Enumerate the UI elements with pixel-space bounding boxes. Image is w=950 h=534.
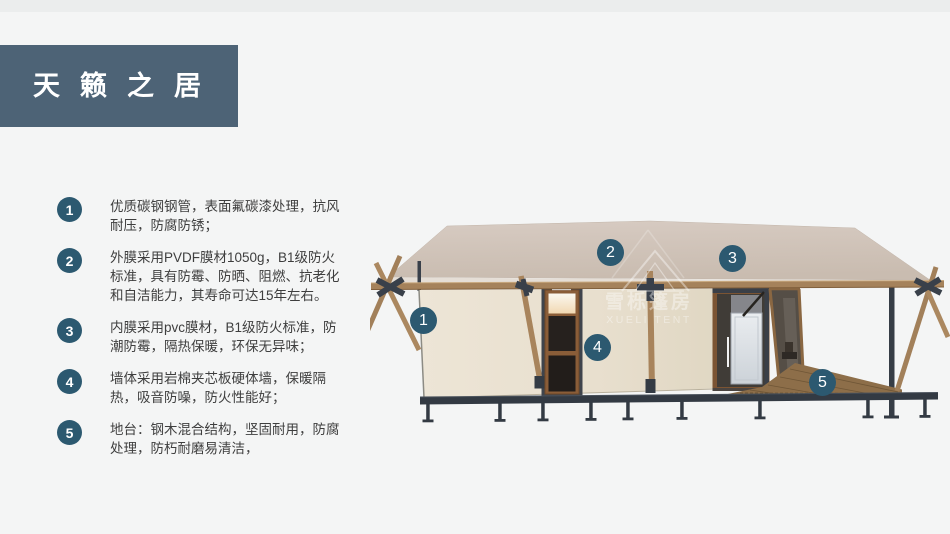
callout-1: 1 (410, 307, 437, 334)
base-frame (420, 393, 938, 423)
feature-item-5: 5 地台：钢木混合结构，坚固耐用，防腐处理，防朽耐磨易清洁， (57, 420, 367, 458)
feature-number-badge: 5 (57, 420, 82, 445)
right-post-foot (884, 416, 899, 419)
door-top-window (549, 294, 576, 314)
feature-item-4: 4 墙体采用岩棉夹芯板硬体墙，保暖隔热，吸音防噪，防火性能好； (57, 369, 367, 407)
entry-door (542, 287, 583, 398)
callout-2: 2 (597, 239, 624, 266)
feature-number-badge: 2 (57, 248, 82, 273)
feature-number-badge: 4 (57, 369, 82, 394)
furniture-silhouette (782, 352, 797, 359)
feature-text: 地台：钢木混合结构，坚固耐用，防腐处理，防朽耐磨易清洁， (110, 420, 348, 458)
door-handle (727, 337, 729, 367)
roof-canopy (388, 221, 930, 280)
feature-item-2: 2 外膜采用PVDF膜材1050g，B1级防火标准，具有防霉、防晒、阻燃、抗老化… (57, 248, 367, 305)
glass-door-section (713, 288, 770, 391)
watermark-cn: 雪栎篷房 (605, 290, 693, 313)
callout-3: 3 (719, 245, 746, 272)
feature-text: 外膜采用PVDF膜材1050g，B1级防火标准，具有防霉、防晒、阻燃、抗老化和自… (110, 248, 348, 305)
door-mid-glass (549, 316, 576, 351)
feature-number-badge: 1 (57, 197, 82, 222)
top-strip (0, 0, 950, 12)
feature-list: 1 优质碳钢钢管，表面氟碳漆处理，抗风耐压，防腐防锈； 2 外膜采用PVDF膜材… (57, 197, 367, 471)
watermark-en: XUELI TENT (606, 314, 692, 326)
tent-illustration: 雪栎篷房 XUELI TENT (370, 210, 950, 440)
door-bottom-glass (549, 356, 576, 392)
feature-text: 优质碳钢钢管，表面氟碳漆处理，抗风耐压，防腐防锈； (110, 197, 348, 235)
feature-text: 内膜采用pvc膜材，B1级防火标准，防潮防霉，隔热保暖，环保无异味； (110, 318, 348, 356)
page-title: 天籁之居 (0, 45, 238, 127)
callout-5: 5 (809, 369, 836, 396)
feature-item-3: 3 内膜采用pvc膜材，B1级防火标准，防潮防霉，隔热保暖，环保无异味； (57, 318, 367, 356)
feature-item-1: 1 优质碳钢钢管，表面氟碳漆处理，抗风耐压，防腐防锈； (57, 197, 367, 235)
feature-number-badge: 3 (57, 318, 82, 343)
white-interior-door (731, 313, 762, 384)
feature-text: 墙体采用岩棉夹芯板硬体墙，保暖隔热，吸音防噪，防火性能好； (110, 369, 348, 407)
title-banner: 天籁之居 (0, 45, 238, 127)
slide: 天籁之居 1 优质碳钢钢管，表面氟碳漆处理，抗风耐压，防腐防锈； 2 外膜采用P… (0, 0, 950, 534)
callout-4: 4 (584, 334, 611, 361)
